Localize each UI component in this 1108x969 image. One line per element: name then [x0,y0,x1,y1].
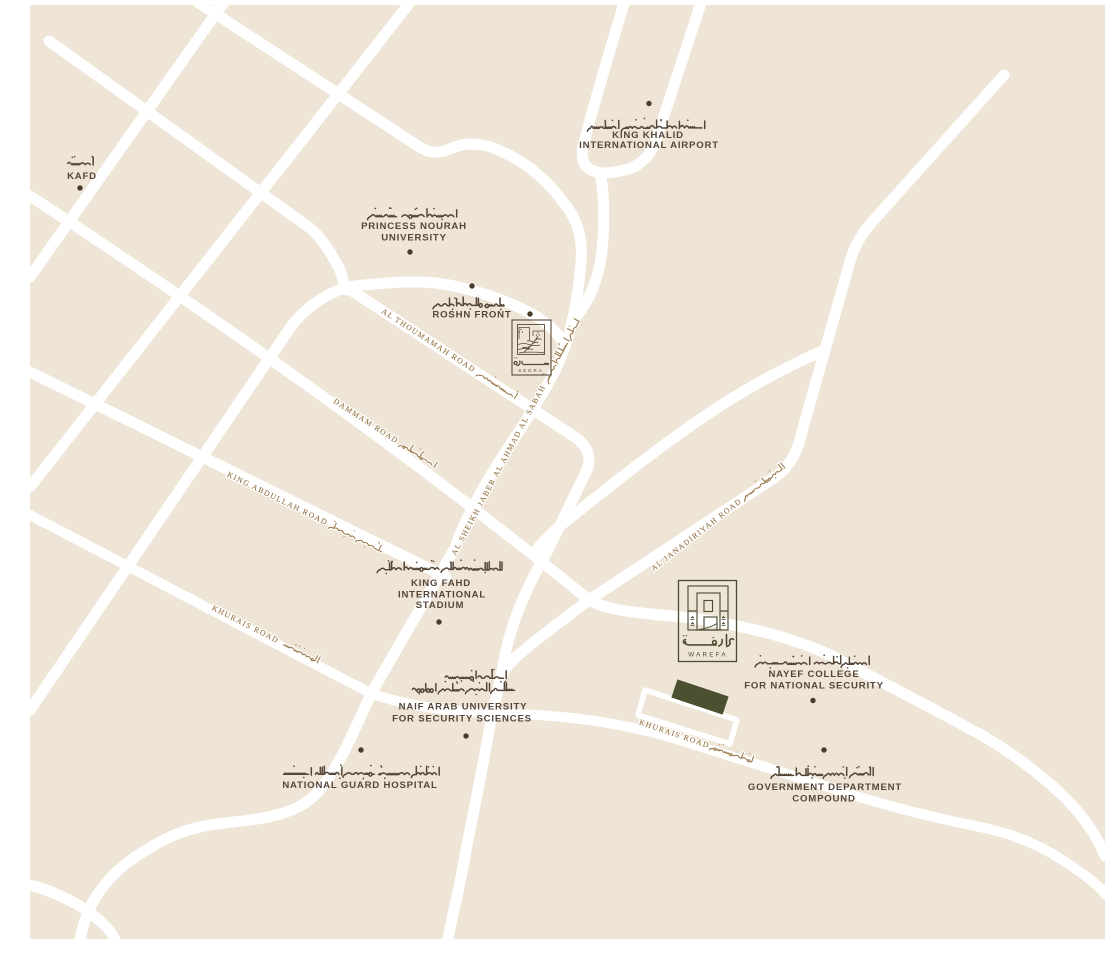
svg-text:PRINCESS NOURAH: PRINCESS NOURAH [361,221,467,232]
svg-text:KING FAHD: KING FAHD [411,578,471,589]
svg-text:SEDRA: SEDRA [518,368,544,373]
svg-text:NAYEF COLLEGE: NAYEF COLLEGE [768,669,859,680]
svg-text:FOR SECURITY SCIENCES: FOR SECURITY SCIENCES [392,714,532,725]
svg-text:COMPOUND: COMPOUND [792,794,855,805]
svg-text:ROSHN FRONT: ROSHN FRONT [432,310,511,321]
svg-text:KAFD: KAFD [67,171,97,182]
svg-text:NAIF ARAB UNIVERSITY: NAIF ARAB UNIVERSITY [399,702,528,713]
svg-text:GOVERNMENT DEPARTMENT: GOVERNMENT DEPARTMENT [748,782,902,793]
svg-text:NATIONAL GUARD HOSPITAL: NATIONAL GUARD HOSPITAL [282,780,437,791]
svg-text:INTERNATIONAL: INTERNATIONAL [398,590,486,601]
svg-text:WAREFA: WAREFA [688,652,728,659]
svg-text:STADIUM: STADIUM [416,600,465,611]
svg-text:UNIVERSITY: UNIVERSITY [381,233,447,244]
svg-text:INTERNATIONAL AIRPORT: INTERNATIONAL AIRPORT [579,140,719,151]
svg-text:FOR NATIONAL SECURITY: FOR NATIONAL SECURITY [744,681,884,692]
